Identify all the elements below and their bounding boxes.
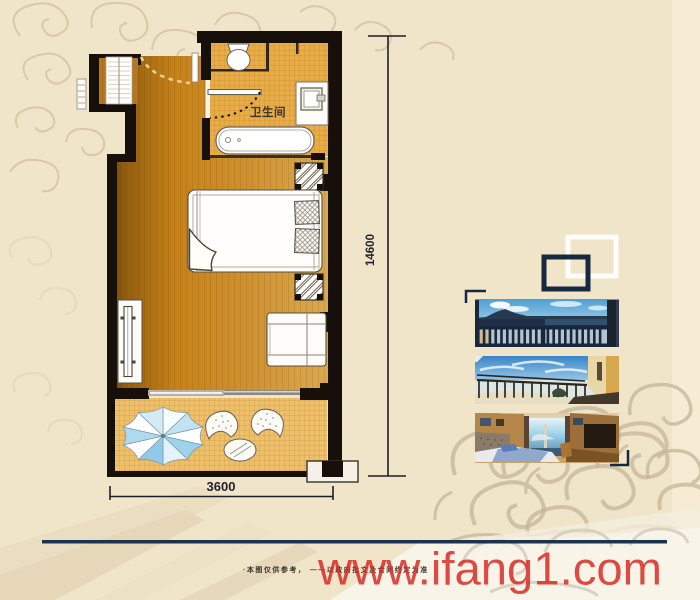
svg-text:www.ifang1.com: www.ifang1.com bbox=[317, 543, 662, 595]
svg-text:14600: 14600 bbox=[365, 234, 377, 266]
svg-text:卫生间: 卫生间 bbox=[250, 105, 286, 119]
svg-text:3600: 3600 bbox=[207, 479, 236, 494]
